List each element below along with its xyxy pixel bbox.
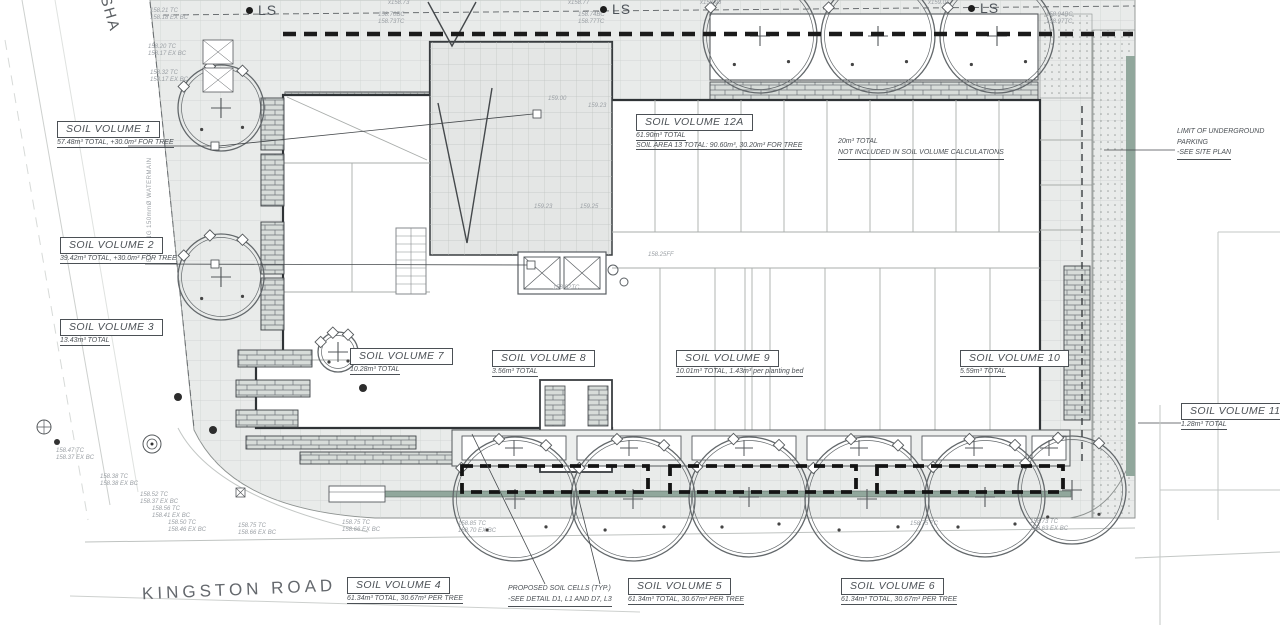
soil-volume-11-total: 1.28m³ TOTAL <box>1181 421 1280 430</box>
note-not-included: 20m³ TOTALNOT INCLUDED IN SOIL VOLUME CA… <box>838 137 1004 160</box>
soil-volume-8-total: 3.56m³ TOTAL <box>492 368 595 377</box>
spot-elevation: 158.25FF <box>648 252 674 259</box>
spot-elevation: 159.25 <box>580 204 598 211</box>
spot-elevation: 158.32 TC158.17 EX BC <box>150 70 188 84</box>
soil-volume-12a-title: SOIL VOLUME 12A <box>636 114 753 131</box>
note-underground-parking-line: PARKING <box>1177 138 1264 149</box>
soil-volume-8-label: SOIL VOLUME 83.56m³ TOTAL <box>492 348 595 377</box>
ls-text: LS <box>980 0 999 16</box>
soil-volume-3-total: 13.43m³ TOTAL <box>60 337 163 346</box>
spot-elevation: 158.20 TC158.17 EX BC <box>148 44 186 58</box>
note-underground-parking-line: -SEE SITE PLAN <box>1177 148 1264 160</box>
spot-elevation: 158.52 TC158.37 EX BC <box>140 492 178 506</box>
spot-elevation: 158.50 TC158.46 EX BC <box>168 520 206 534</box>
soil-volume-2-total: 39.42m³ TOTAL, +30.0m³ FOR TREE <box>60 255 177 264</box>
ls-dot <box>246 7 253 14</box>
note-underground-parking-line: LIMIT OF UNDERGROUND <box>1177 127 1264 138</box>
spot-elevation: 158.85 TC158.70 EX BC <box>458 521 496 535</box>
soil-volume-7-title: SOIL VOLUME 7 <box>350 348 453 365</box>
spot-elevation: 158.75 TC158.66 EX BC <box>342 520 380 534</box>
soil-volume-6-total: 61.34m³ TOTAL, 30.67m³ PER TREE <box>841 596 957 605</box>
soil-volume-11-title: SOIL VOLUME 11 <box>1181 403 1280 420</box>
soil-volume-12a-label: SOIL VOLUME 12A61.90m³ TOTALSOIL AREA 13… <box>636 112 802 150</box>
site-plan-canvas: KINGSTON ROAD SHA EXISTING 150mmØ WATERM… <box>0 0 1280 625</box>
spot-elevation: 158.21 TC158.18 EX BC <box>150 8 188 22</box>
soil-volume-7-total: 10.28m³ TOTAL <box>350 366 453 375</box>
soil-volume-1-title: SOIL VOLUME 1 <box>57 121 160 138</box>
spot-elevation: 158.73 TC158.63 EX BC <box>1030 519 1068 533</box>
soil-volume-3-label: SOIL VOLUME 313.43m³ TOTAL <box>60 317 163 346</box>
note-proposed-soil-cells-line: -SEE DETAIL D1, L1 AND D7, L3 <box>508 595 612 607</box>
spot-elevation: 158.75 TC <box>910 521 938 528</box>
spot-elevation: 158.92TC <box>553 285 579 292</box>
soil-volume-9-title: SOIL VOLUME 9 <box>676 350 779 367</box>
soil-volume-1-label: SOIL VOLUME 157.48m³ TOTAL, +30.0m³ FOR … <box>57 119 174 148</box>
ls-marker: LS <box>600 1 631 17</box>
ls-marker: LS <box>968 0 999 16</box>
soil-volume-9-label: SOIL VOLUME 910.01m³ TOTAL, 1.43m³ per p… <box>676 348 803 377</box>
soil-volume-1-total: 57.48m³ TOTAL, +30.0m³ FOR TREE <box>57 139 174 148</box>
ls-text: LS <box>612 1 631 17</box>
ls-text: LS <box>258 2 277 18</box>
spot-elevation: 159.00 <box>548 96 566 103</box>
soil-volume-3-title: SOIL VOLUME 3 <box>60 319 163 336</box>
spot-elevation: 158.94BC158.97TC <box>1046 12 1073 26</box>
soil-volume-8-title: SOIL VOLUME 8 <box>492 350 595 367</box>
spot-elevation: x158.77 <box>568 0 589 7</box>
note-underground-parking: LIMIT OF UNDERGROUNDPARKING-SEE SITE PLA… <box>1177 127 1264 160</box>
soil-volume-7-label: SOIL VOLUME 710.28m³ TOTAL <box>350 346 453 375</box>
ls-dot <box>600 6 607 13</box>
soil-volume-10-total: 5.59m³ TOTAL <box>960 368 1069 377</box>
spot-elevation: 158.75 TC158.66 EX BC <box>238 523 276 537</box>
spot-elevation: x159.01 <box>928 0 949 7</box>
soil-volume-5-label: SOIL VOLUME 561.34m³ TOTAL, 30.67m³ PER … <box>628 576 744 605</box>
soil-volume-4-title: SOIL VOLUME 4 <box>347 577 450 594</box>
spot-elevation: 159.23 <box>588 103 606 110</box>
note-proposed-soil-cells-line: PROPOSED SOIL CELLS (TYP.) <box>508 584 612 595</box>
spot-elevation: 158.56 TC158.41 EX BC <box>152 506 190 520</box>
soil-volume-4-label: SOIL VOLUME 461.34m³ TOTAL, 30.67m³ PER … <box>347 575 463 604</box>
soil-volume-11-label: SOIL VOLUME 111.28m³ TOTAL <box>1181 401 1280 430</box>
soil-volume-5-title: SOIL VOLUME 5 <box>628 578 731 595</box>
soil-volume-12a-total: 61.90m³ TOTAL <box>636 132 802 141</box>
spot-elevation: 158.47 TC158.37 EX BC <box>56 448 94 462</box>
soil-volume-10-title: SOIL VOLUME 10 <box>960 350 1069 367</box>
soil-volume-2-label: SOIL VOLUME 239.42m³ TOTAL, +30.0m³ FOR … <box>60 235 177 264</box>
soil-volume-9-total: 10.01m³ TOTAL, 1.43m³ per planting bed <box>676 368 803 377</box>
soil-volume-10-label: SOIL VOLUME 105.59m³ TOTAL <box>960 348 1069 377</box>
ls-marker: LS <box>246 2 277 18</box>
spot-elevation: 158.38 TC158.38 EX BC <box>100 474 138 488</box>
ls-dot <box>968 5 975 12</box>
spot-elevation: x158.73 <box>388 0 409 7</box>
note-not-included-line: NOT INCLUDED IN SOIL VOLUME CALCULATIONS <box>838 148 1004 160</box>
road-label-kingston: KINGSTON ROAD <box>142 576 337 604</box>
soil-volume-6-label: SOIL VOLUME 661.34m³ TOTAL, 30.67m³ PER … <box>841 576 957 605</box>
spot-elevation: 159.23 <box>534 204 552 211</box>
soil-volume-2-title: SOIL VOLUME 2 <box>60 237 163 254</box>
soil-volume-5-total: 61.34m³ TOTAL, 30.67m³ PER TREE <box>628 596 744 605</box>
spot-elevation: 158.70BC158.73TC <box>378 12 405 26</box>
soil-volume-12a-detail: SOIL AREA 13 TOTAL: 90.60m³, 30.20m³ FOR… <box>636 142 802 151</box>
soil-volume-6-title: SOIL VOLUME 6 <box>841 578 944 595</box>
annotation-layer: KINGSTON ROAD SHA EXISTING 150mmØ WATERM… <box>0 0 1280 625</box>
note-not-included-line: 20m³ TOTAL <box>838 137 1004 148</box>
note-proposed-soil-cells: PROPOSED SOIL CELLS (TYP.)-SEE DETAIL D1… <box>508 584 612 607</box>
road-label-side-street: SHA <box>97 0 123 34</box>
soil-volume-4-total: 61.34m³ TOTAL, 30.67m³ PER TREE <box>347 595 463 604</box>
spot-elevation: x158.96 <box>700 0 721 7</box>
